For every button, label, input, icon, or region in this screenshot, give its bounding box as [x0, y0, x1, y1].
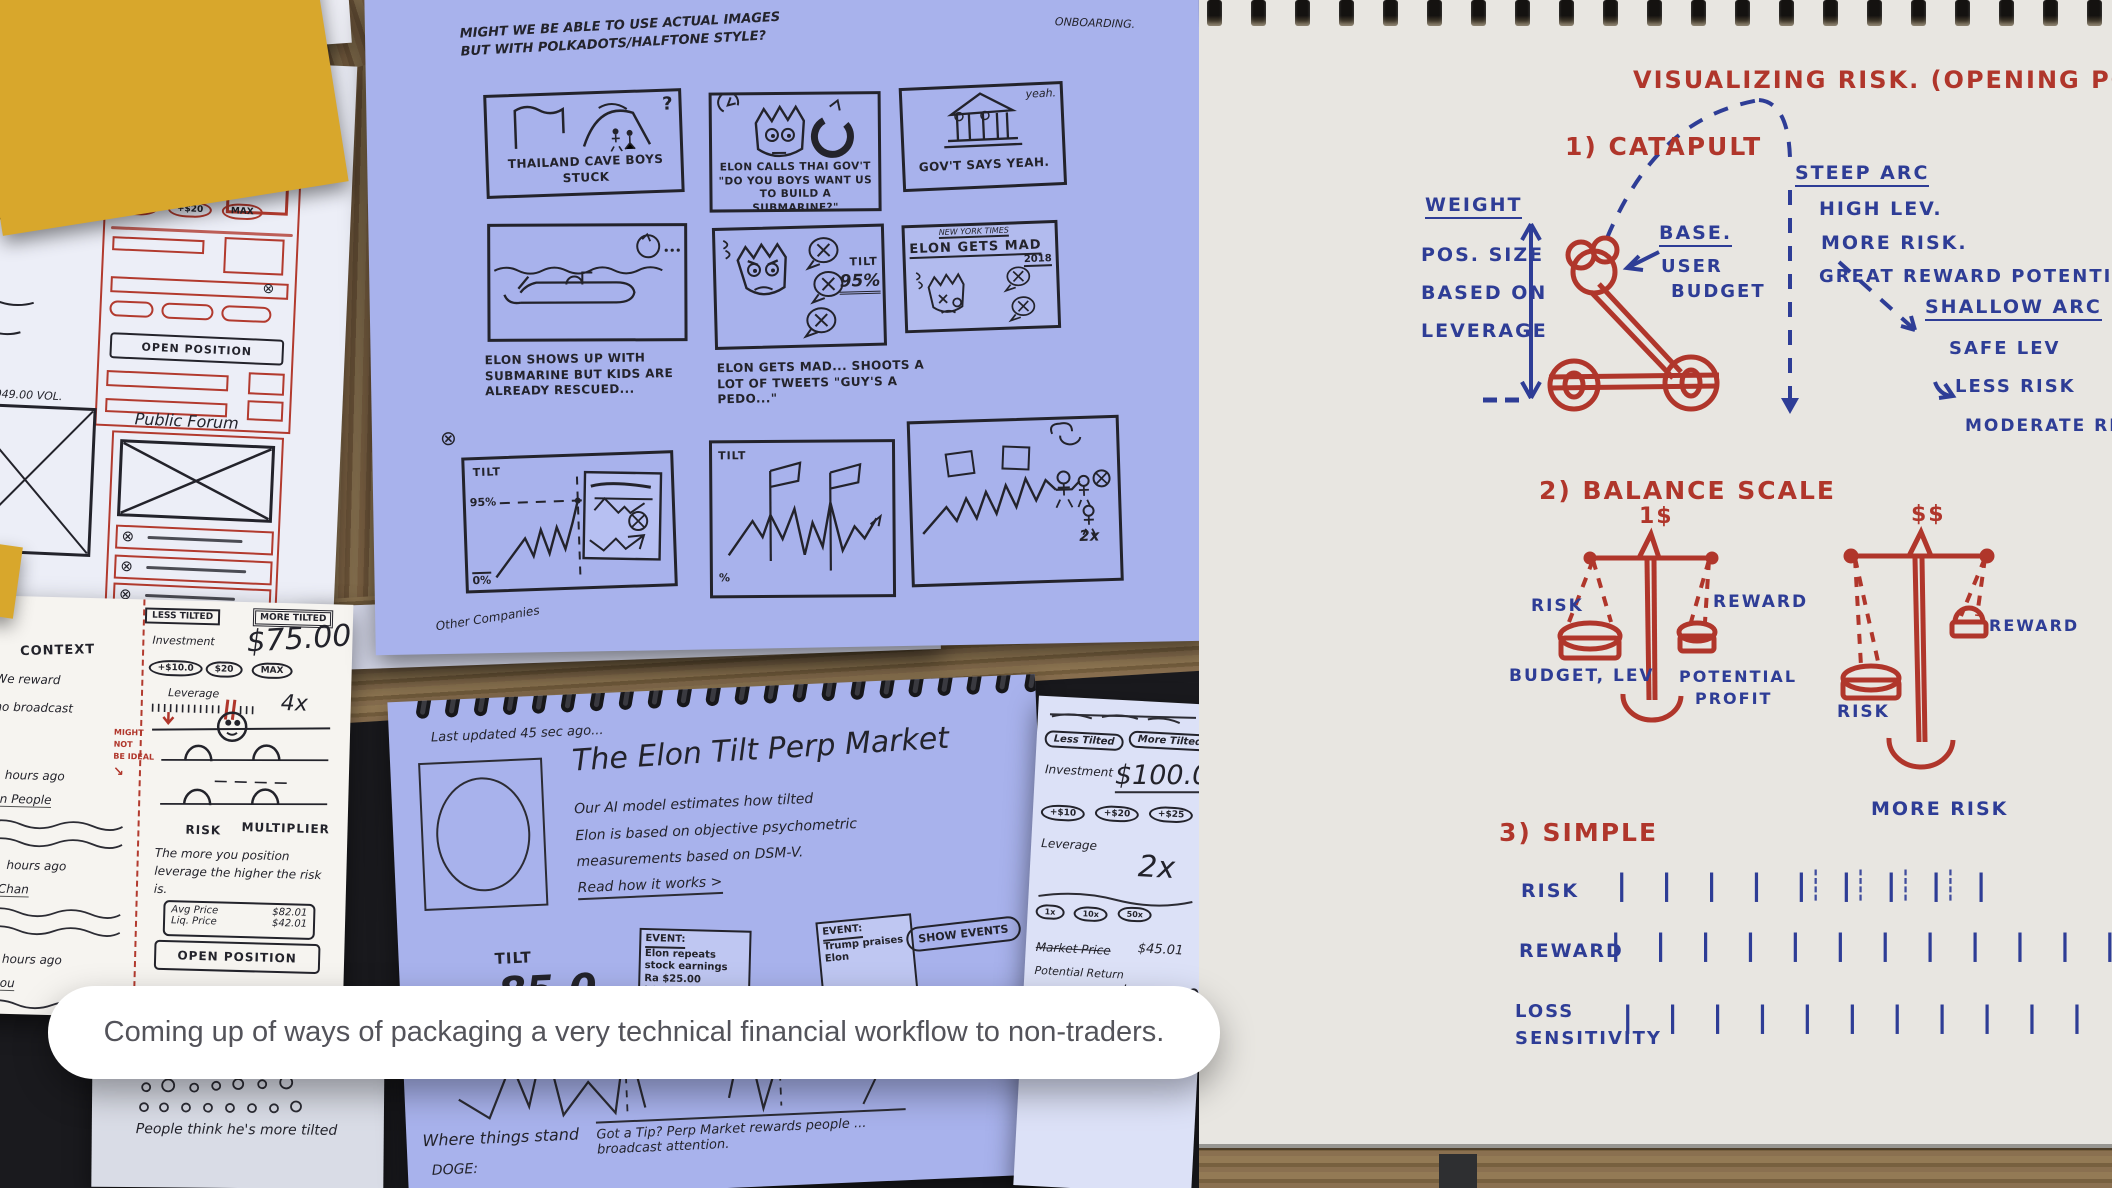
cave-flag-sketch	[486, 91, 680, 156]
shallow-arc-label: SHALLOW ARC	[1925, 296, 2102, 321]
newspaper-masthead: NEW YORK TIMES	[939, 226, 1010, 239]
steep-note-1: HIGH LEV.	[1819, 198, 1943, 220]
multiplier-label: MULTIPLIER	[241, 820, 330, 836]
pill-max: MAX	[222, 203, 264, 221]
budget-lev-label: BUDGET, LEV	[1509, 666, 1655, 686]
pill-max: MAX	[251, 662, 292, 679]
storyboard-panel-6: NEW YORK TIMES ELON GETS MAD 2018	[901, 220, 1061, 333]
steep-note-2: MORE RISK.	[1821, 232, 1968, 254]
tilt-percent: 95%	[839, 271, 880, 295]
crossed-eye-icon: ⊗	[262, 281, 274, 297]
elon-phone-sketch	[712, 94, 879, 161]
risk-tally-dotted: ┊ ┊ ┊ ┊	[1807, 868, 1964, 902]
market-price-value: $45.01	[1137, 941, 1183, 958]
risk-sketches	[1199, 0, 2112, 1160]
storyboard-footer-note: Other Companies	[435, 603, 541, 633]
steep-note-3: GREAT REWARD POTENTIAL.	[1819, 266, 2112, 287]
risk-notebook-photo: VISUALIZING RISK. (OPENING POS) 1) CATAP…	[1199, 0, 2112, 1188]
loss-tally: | | | | | | | | | | | |	[1619, 1000, 2112, 1034]
tilt-label: TILT	[849, 255, 878, 269]
caption-text: Coming up of ways of packaging a very te…	[104, 1016, 1165, 1049]
caption-bubble: Coming up of ways of packaging a very te…	[48, 986, 1220, 1079]
pill-10x: 10x	[1073, 906, 1108, 923]
storyboard-panel-4	[487, 223, 687, 342]
market-body: Our AI model estimates how tilted Elon i…	[574, 784, 859, 876]
catapult-heading: 1) CATAPULT	[1565, 132, 1762, 161]
crowd-note: 2x	[1079, 526, 1100, 545]
shallow-note-3: MODERATE REWARD	[1965, 416, 2112, 436]
amount-value: $75.00	[246, 618, 353, 659]
question-mark: ?	[662, 93, 673, 114]
submarine-sketch	[490, 226, 684, 339]
storyboard-panel-2: ELON CALLS THAI GOV'T "DO YOU BOYS WANT …	[709, 91, 882, 212]
market-landing-page: Last updated 45 sec ago... The Elon Tilt…	[387, 674, 1056, 1188]
risk-label: RISK	[185, 823, 221, 838]
left-scale-amount: 1$	[1639, 504, 1674, 529]
market-title: The Elon Tilt Perp Market	[571, 721, 950, 779]
base-label: BASE.	[1659, 222, 1732, 247]
balance-heading: 2) BALANCE SCALE	[1539, 476, 1836, 505]
storyboard-panel-9: 2x	[907, 415, 1124, 588]
left-reward-label: REWARD	[1713, 592, 1808, 612]
panel-caption: GOV'T SAYS YEAH.	[909, 154, 1060, 176]
crowd-chart-sketch	[910, 418, 1121, 584]
panel-caption: ELON CALLS THAI GOV'T "DO YOU BOYS WANT …	[716, 160, 874, 216]
crossed-image-fragment	[0, 402, 99, 560]
storyboard-panel-8: TILT %	[709, 439, 896, 598]
controls-page: Less Tilted More Tilted Investment $100.…	[1013, 696, 1199, 1188]
right-scale-amount: $$	[1911, 502, 1946, 527]
investment-label: Investment	[1045, 762, 1114, 780]
avatar-icon: ⊗	[120, 557, 133, 576]
risk-arcs-sketch	[152, 736, 339, 823]
more-risk-label: MORE RISK	[1871, 798, 2008, 820]
storyboard-top-note: MIGHT WE BE ABLE TO USE ACTUAL IMAGES BU…	[459, 8, 800, 61]
pill-add10: +$10.0	[148, 660, 202, 677]
open-position-button-sketch: OPEN POSITION	[154, 940, 321, 974]
pill-add25: +$25	[1149, 806, 1194, 824]
tilt-label: TILT	[718, 449, 746, 462]
market-price-label: Market Price	[1035, 940, 1111, 958]
shallow-note-2: LESS RISK	[1955, 376, 2076, 397]
leverage-value: 2x	[1137, 849, 1176, 886]
pct-label: %	[719, 571, 730, 584]
weight-label: WEIGHT	[1425, 194, 1522, 219]
wavy-placeholder-lines	[0, 595, 135, 1019]
user-budget-label: USER BUDGET	[1661, 254, 1766, 304]
investment-amount: $100.0	[1115, 760, 1199, 793]
sketch-photo-collage: How it works GIVE THE PERP Sign In +$10 …	[0, 0, 2112, 1188]
mini-mad-face-sketch	[910, 261, 1052, 332]
pill-20: $20	[205, 661, 242, 678]
simple-heading: 3) SIMPLE	[1499, 818, 1658, 847]
speech-bubble-text: yeah.	[1025, 86, 1056, 100]
more-tilted-pill: More Tilted	[1128, 730, 1199, 751]
risk-note: The more you position leverage the highe…	[154, 844, 323, 902]
forum-title: Public Forum	[134, 409, 239, 433]
pos-size-note: POS. SIZE BASED ON LEVERAGE	[1421, 236, 1548, 350]
pill-add10: +$10	[1040, 804, 1085, 822]
last-updated: Last updated 45 sec ago...	[431, 723, 604, 746]
forum-section: ⊗ ⊗ ⊗	[104, 430, 284, 615]
pill-50x: 50x	[1117, 906, 1152, 923]
storyboard-panel-1: ? THAILAND CAVE BOYS STUCK	[483, 88, 685, 199]
storyboard-panel-5: TILT 95%	[712, 224, 887, 350]
corner-note: ONBOARDING.	[1055, 15, 1136, 31]
bullet-doge: DOGE:	[432, 1161, 479, 1179]
storyboard-panel-7: TILT 95% 0%	[461, 450, 678, 593]
panel-caption: THAILAND CAVE BOYS STUCK	[494, 151, 677, 189]
avatar-placeholder	[418, 758, 548, 911]
flag-chart-sketch	[712, 442, 893, 595]
reward-tally: | | | | | | | | | | | | |	[1607, 928, 2112, 962]
storyboard-page: MIGHT WE BE ABLE TO USE ACTUAL IMAGES BU…	[364, 0, 1199, 655]
open-position-button-sketch: OPEN POSITION	[109, 332, 284, 366]
right-risk-label: RISK	[1837, 702, 1890, 722]
pill-1x: 1x	[1035, 904, 1064, 920]
order-ticket-page: LESS TILTED MORE TILTED Investment $75.0…	[0, 595, 353, 1022]
crossed-image-placeholder	[116, 439, 275, 524]
panel-caption: ELON SHOWS UP WITH SUBMARINE BUT KIDS AR…	[471, 349, 712, 400]
less-tilted-pill: Less Tilted	[1044, 730, 1124, 751]
less-tilted-toggle: LESS TILTED	[145, 607, 220, 625]
tilt-label: TILT	[473, 465, 502, 479]
investment-label: Investment	[152, 634, 215, 649]
shallow-note-1: SAFE LEV	[1949, 338, 2060, 359]
potential-profit-label: POTENTIAL PROFIT	[1679, 666, 1797, 711]
pill-add20: +$20	[1094, 805, 1139, 823]
right-reward-label: REWARD	[1989, 616, 2079, 635]
leverage-label: Leverage	[1041, 836, 1097, 853]
newspaper-headline: ELON GETS MAD	[909, 237, 1042, 259]
left-risk-label: RISK	[1531, 596, 1584, 616]
panel-caption: ELON GETS MAD... SHOOTS A LOT OF TWEETS …	[707, 357, 938, 408]
steep-arc-label: STEEP ARC	[1795, 162, 1929, 187]
storyboard-panel-3: yeah. GOV'T SAYS YEAH.	[899, 81, 1067, 192]
crossed-circle-icon: ⊗	[440, 426, 457, 450]
people-think-note: People think he's more tilted	[136, 1121, 366, 1139]
read-more-link: Read how it works >	[577, 874, 723, 900]
tilt-top-pct: 95%	[470, 495, 497, 509]
risk-title: VISUALIZING RISK. (OPENING POS)	[1633, 66, 2112, 94]
tilt-label: TILT	[494, 948, 532, 968]
simple-risk-label: RISK	[1521, 880, 1579, 902]
avatar-icon: ⊗	[121, 527, 134, 546]
price-box: Avg Price $82.01 Liq. Price $42.01	[163, 900, 316, 940]
tilt-bottom-pct: 0%	[472, 572, 491, 588]
